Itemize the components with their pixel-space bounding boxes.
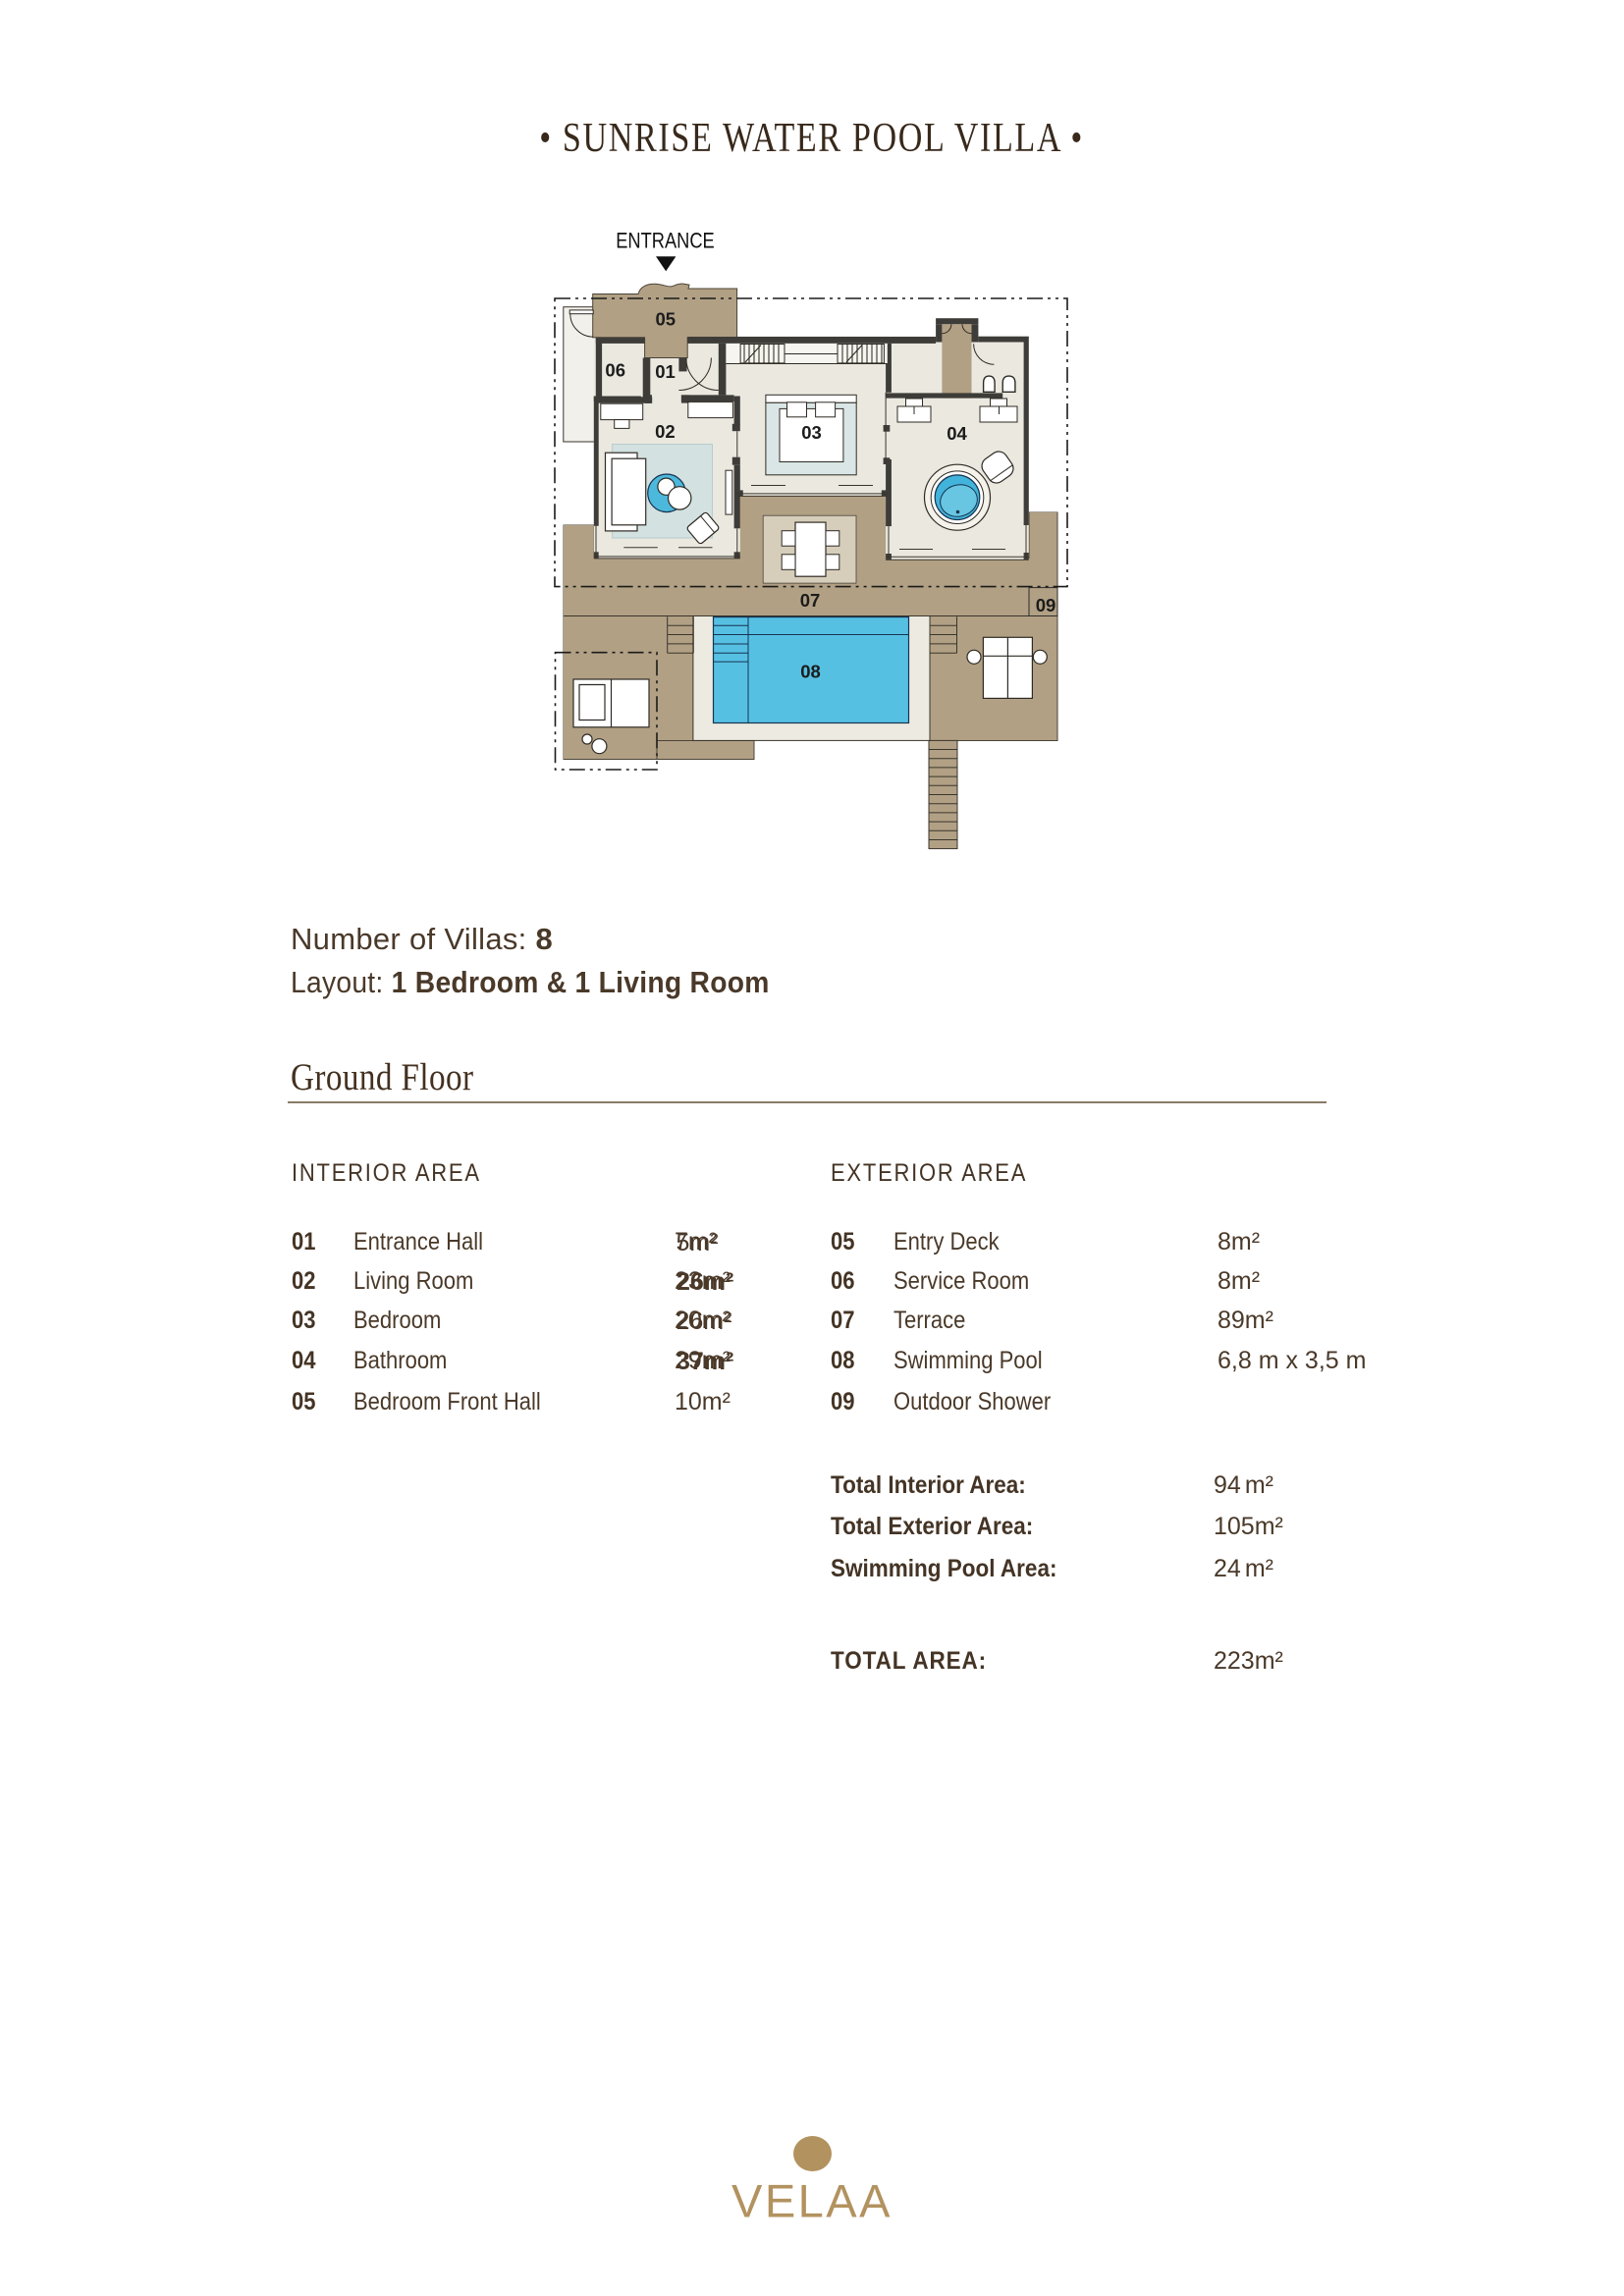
svg-text:VELAA: VELAA <box>731 2175 893 2227</box>
svg-text:01: 01 <box>655 361 676 382</box>
svg-text:06: 06 <box>605 359 625 380</box>
svg-text:ENTRANCE: ENTRANCE <box>616 229 715 253</box>
svg-text:07: 07 <box>800 590 821 611</box>
svg-text:09: 09 <box>1036 595 1056 615</box>
svg-text:04: 04 <box>947 423 967 444</box>
svg-text:02: 02 <box>655 421 676 442</box>
svg-text:08: 08 <box>800 662 821 682</box>
svg-text:03: 03 <box>801 422 822 443</box>
svg-text:05: 05 <box>656 309 677 330</box>
